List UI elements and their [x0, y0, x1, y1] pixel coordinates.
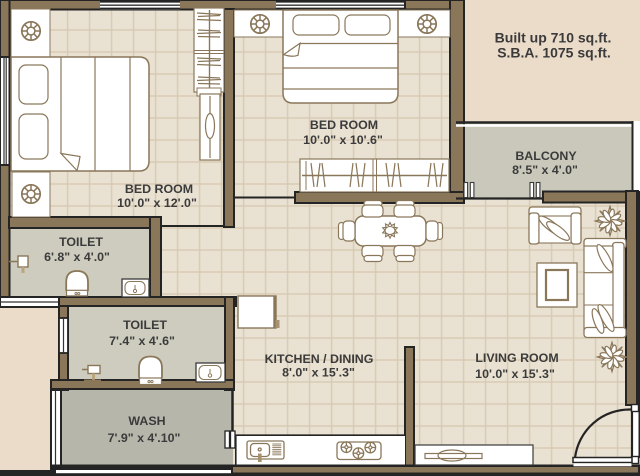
- svg-text:TOILET: TOILET: [123, 318, 167, 332]
- svg-text:10'.0" x 12'.0": 10'.0" x 12'.0": [117, 196, 197, 210]
- svg-text:S.B.A. 1075 sq.ft.: S.B.A. 1075 sq.ft.: [497, 45, 611, 61]
- svg-text:6'.8" x 4'.0": 6'.8" x 4'.0": [44, 250, 110, 264]
- svg-text:7'.4" x 4'.6": 7'.4" x 4'.6": [109, 334, 175, 348]
- svg-text:KITCHEN / DINING: KITCHEN / DINING: [265, 352, 374, 366]
- svg-text:8'.5" x 4'.0": 8'.5" x 4'.0": [512, 163, 578, 177]
- svg-text:TOILET: TOILET: [59, 235, 103, 249]
- svg-text:7'.9" x 4'.10": 7'.9" x 4'.10": [108, 431, 181, 445]
- svg-text:BED ROOM: BED ROOM: [125, 182, 193, 196]
- svg-text:10'.0" x 15'.3": 10'.0" x 15'.3": [475, 367, 555, 381]
- svg-text:BED ROOM: BED ROOM: [310, 118, 378, 132]
- svg-text:10'.0" x 10'.6": 10'.0" x 10'.6": [303, 133, 383, 147]
- svg-text:Built up 710 sq.ft.: Built up 710 sq.ft.: [495, 30, 612, 46]
- svg-text:8'.0" x 15'.3": 8'.0" x 15'.3": [282, 366, 355, 380]
- svg-text:BALCONY: BALCONY: [515, 149, 577, 163]
- svg-text:WASH: WASH: [128, 414, 165, 428]
- svg-text:LIVING ROOM: LIVING ROOM: [475, 351, 558, 365]
